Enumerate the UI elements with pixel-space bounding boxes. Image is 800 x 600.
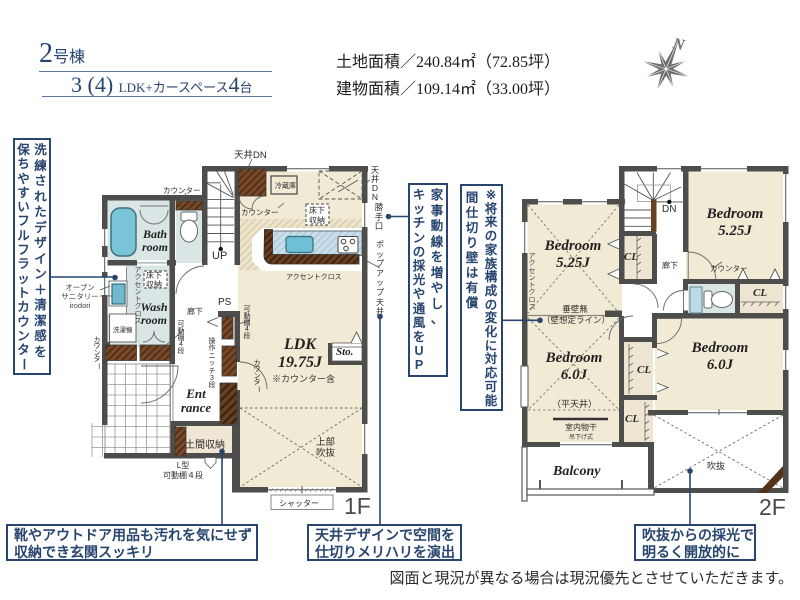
svg-text:N: N xyxy=(670,35,687,55)
